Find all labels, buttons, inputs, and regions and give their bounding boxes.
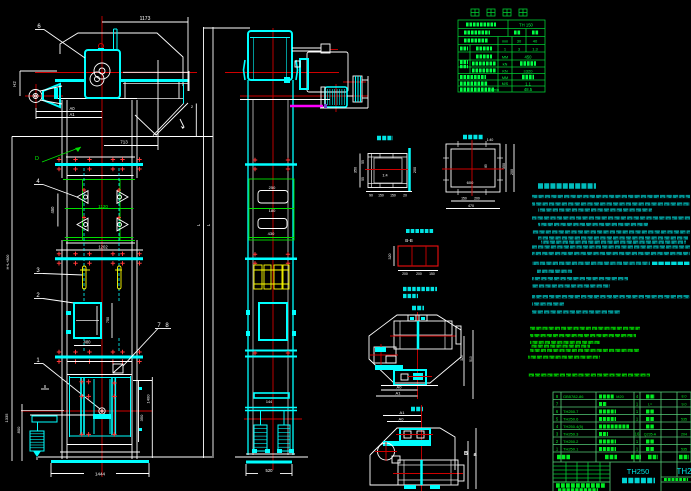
svg-text:200: 200 <box>474 197 480 201</box>
svg-text:1: 1 <box>556 447 559 452</box>
svg-text:M20: M20 <box>616 395 623 399</box>
svg-text:16: 16 <box>635 432 640 437</box>
svg-text:mm: mm <box>502 40 508 44</box>
svg-text:350: 350 <box>139 414 144 421</box>
svg-text:L: L <box>206 223 211 226</box>
svg-text:1335: 1335 <box>4 413 9 423</box>
svg-text:1:40: 1:40 <box>487 138 494 142</box>
svg-text:1173: 1173 <box>140 16 151 22</box>
svg-text:1: 1 <box>636 402 639 407</box>
svg-text:TH250: TH250 <box>627 467 650 476</box>
svg-text:200: 200 <box>510 169 514 175</box>
svg-text:600: 600 <box>467 180 474 185</box>
svg-text:7: 7 <box>556 402 559 407</box>
svg-text:480: 480 <box>84 340 92 345</box>
svg-text:350: 350 <box>502 163 506 169</box>
svg-text:A1: A1 <box>396 391 402 396</box>
svg-text:750: 750 <box>106 317 110 323</box>
svg-text:3: 3 <box>518 47 521 52</box>
svg-text:713: 713 <box>120 140 128 145</box>
svg-text:TH2: TH2 <box>676 467 691 476</box>
svg-text:520: 520 <box>266 468 274 473</box>
svg-text:1400: 1400 <box>146 394 151 404</box>
svg-text:4: 4 <box>556 424 559 429</box>
svg-text:B-B: B-B <box>405 238 413 243</box>
svg-text:A0: A0 <box>399 417 405 422</box>
svg-text:A1: A1 <box>69 112 75 117</box>
svg-text:150: 150 <box>461 197 467 201</box>
svg-text:M/S: M/S <box>502 82 509 86</box>
svg-text:1.3: 1.3 <box>532 47 538 52</box>
svg-text:H+L+800: H+L+800 <box>6 255 10 270</box>
svg-text:250: 250 <box>269 185 276 190</box>
svg-text:430: 430 <box>268 231 275 236</box>
svg-text:800: 800 <box>16 426 21 433</box>
svg-text:450: 450 <box>525 55 533 60</box>
svg-text:A0: A0 <box>69 106 75 111</box>
svg-text:TH250.2: TH250.2 <box>563 439 579 444</box>
svg-text:MM: MM <box>502 56 508 60</box>
svg-text:H2: H2 <box>12 81 17 87</box>
svg-text:30: 30 <box>517 39 522 44</box>
svg-text:TH250.7: TH250.7 <box>563 409 579 414</box>
svg-text:150: 150 <box>390 194 396 198</box>
svg-text:B: B <box>464 451 468 457</box>
svg-text:II: II <box>44 384 46 389</box>
svg-text:200: 200 <box>416 272 422 276</box>
svg-text:TH250.1: TH250.1 <box>563 447 579 452</box>
svg-text:48.5: 48.5 <box>524 87 533 92</box>
svg-text:L=: L= <box>648 403 653 407</box>
svg-text:510: 510 <box>469 356 473 362</box>
svg-text:180: 180 <box>269 208 276 213</box>
svg-text:200: 200 <box>413 167 417 173</box>
svg-text:≥320: ≥320 <box>524 69 534 74</box>
svg-text:a: a <box>473 452 477 458</box>
svg-text:20: 20 <box>403 194 407 198</box>
svg-text:KN: KN <box>502 70 508 74</box>
svg-text:144: 144 <box>266 400 272 404</box>
svg-text:9.0: 9.0 <box>682 403 687 407</box>
svg-text:MM: MM <box>502 76 508 80</box>
svg-text:40: 40 <box>533 39 538 44</box>
svg-text:Q235-A: Q235-A <box>644 433 657 437</box>
svg-text:150: 150 <box>429 272 435 276</box>
svg-text:1: 1 <box>504 47 507 52</box>
svg-text:TH 150: TH 150 <box>519 23 533 28</box>
svg-text:1202: 1202 <box>98 245 108 250</box>
svg-text:2: 2 <box>191 104 194 109</box>
svg-text:GB5782-86: GB5782-86 <box>563 394 584 399</box>
svg-text:320: 320 <box>460 355 464 361</box>
svg-text:1120: 1120 <box>98 204 108 209</box>
svg-text:A0: A0 <box>397 385 403 390</box>
svg-text:200: 200 <box>402 272 408 276</box>
svg-text:A1: A1 <box>400 410 406 415</box>
svg-text:150: 150 <box>378 194 384 198</box>
svg-text:55: 55 <box>361 177 365 181</box>
svg-text:TH250.4(5): TH250.4(5) <box>563 424 584 429</box>
svg-text:r/min: r/min <box>491 88 499 92</box>
svg-text:TH250.6: TH250.6 <box>563 417 579 422</box>
svg-text:4: 4 <box>636 394 639 399</box>
svg-text:6: 6 <box>556 409 559 414</box>
svg-text:TH250.3: TH250.3 <box>563 432 579 437</box>
svg-text:535: 535 <box>681 418 687 422</box>
svg-text:8.0: 8.0 <box>682 395 687 399</box>
svg-text:90: 90 <box>369 194 373 198</box>
svg-text:1: 1 <box>636 447 639 452</box>
svg-text:320: 320 <box>388 254 392 260</box>
svg-text:470: 470 <box>468 204 474 208</box>
svg-text:kN: kN <box>503 63 508 67</box>
svg-text:D: D <box>35 156 39 162</box>
svg-text:350: 350 <box>354 167 358 173</box>
svg-text:1.1: 1.1 <box>525 81 531 86</box>
svg-text:5: 5 <box>556 417 559 422</box>
svg-text:204: 204 <box>681 433 687 437</box>
svg-text:3: 3 <box>556 432 559 437</box>
svg-text:1:4: 1:4 <box>382 174 387 178</box>
svg-text:55: 55 <box>361 160 365 164</box>
svg-text:1: 1 <box>636 417 639 422</box>
svg-text:535: 535 <box>681 448 687 452</box>
svg-text:8: 8 <box>556 394 559 399</box>
svg-text:L: L <box>196 223 201 226</box>
svg-text:85: 85 <box>484 164 488 168</box>
svg-text:1444: 1444 <box>95 472 106 477</box>
svg-text:2: 2 <box>556 439 559 444</box>
svg-text:450: 450 <box>50 206 55 214</box>
svg-text:1: 1 <box>636 439 639 444</box>
svg-text:1: 1 <box>636 409 639 414</box>
